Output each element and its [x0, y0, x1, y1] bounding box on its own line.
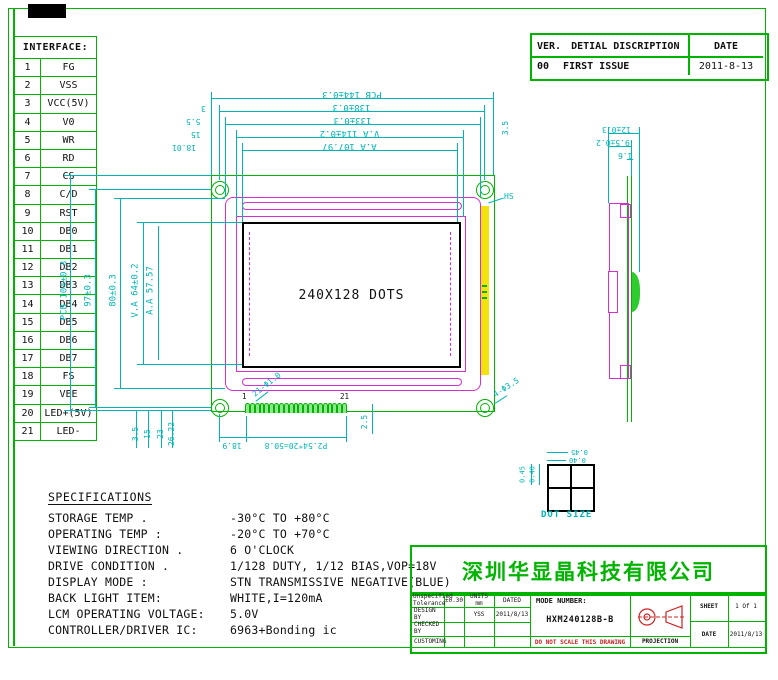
- strip-marking: [482, 285, 487, 287]
- dim-label: 97±0.3: [85, 246, 94, 336]
- interface-row: 18FS: [15, 367, 96, 385]
- pin-name: LED+(5V): [41, 405, 96, 422]
- interface-row: 8C/D: [15, 185, 96, 203]
- mounting-hole-inner: [480, 403, 490, 413]
- logo-block: [28, 4, 66, 18]
- dim-label: 18.9: [214, 441, 250, 449]
- revision-table: VER. DETIAL DISCRIPTION DATE 00 FIRST IS…: [530, 33, 769, 81]
- dim-label: 9.5±0.2: [596, 138, 630, 146]
- rev-desc: FIRST ISSUE: [563, 61, 629, 72]
- spec-label: DISPLAY MODE :: [48, 575, 230, 591]
- dim-label: 3.5: [132, 416, 140, 452]
- spec-value: -30°C TO +80°C: [230, 511, 330, 527]
- pin-number: 21: [15, 423, 41, 440]
- interface-row: 5WR: [15, 131, 96, 149]
- extension-line: [463, 130, 464, 217]
- company-name: 深圳华显晶科技有限公司: [462, 556, 715, 586]
- pin-number: 16: [15, 332, 41, 349]
- va-dashed-line: [450, 232, 451, 356]
- mounting-hole-inner: [480, 185, 490, 195]
- interface-title: INTERFACE:: [15, 37, 96, 58]
- extension-line: [114, 198, 225, 199]
- dimension-line: [158, 226, 159, 360]
- dated-label: DATED: [495, 595, 529, 607]
- extension-line: [346, 416, 347, 442]
- dim-label: 5.5: [186, 117, 200, 125]
- dim-label: P2.54*20=50.8: [246, 441, 346, 449]
- pin-name: C/D: [41, 186, 96, 203]
- model-number-value: HXM240128B-B: [531, 608, 629, 632]
- extension-line: [114, 388, 225, 389]
- spec-label: DRIVE CONDITION .: [48, 559, 230, 575]
- spec-label: BACK LIGHT ITEM:: [48, 591, 230, 607]
- pin-name: FS: [41, 368, 96, 385]
- dot-cell: [570, 487, 595, 512]
- dim-label: 23: [157, 416, 165, 452]
- extension-line: [89, 189, 211, 190]
- pin-name: CS: [41, 168, 96, 185]
- dim-label: 3: [201, 104, 206, 112]
- spec-value: 6963+Bonding ic: [230, 623, 337, 639]
- interface-row: 19VEE: [15, 385, 96, 403]
- pin-number: 6: [15, 150, 41, 167]
- dot-cell: [547, 464, 572, 489]
- mounting-hole-inner: [215, 185, 225, 195]
- dim-label: 12±0.3: [602, 125, 631, 133]
- dim-label: 15: [144, 416, 152, 452]
- interface-row: 17DB7: [15, 349, 96, 367]
- interface-row: 20LED+(5V): [15, 404, 96, 422]
- dim-label: 15: [191, 130, 201, 138]
- interface-row: 1FG: [15, 58, 96, 76]
- specifications: SPECIFICATIONS STORAGE TEMP .-30°C TO +8…: [48, 486, 451, 639]
- pin-number: 1: [15, 59, 41, 76]
- extension-line: [493, 92, 494, 175]
- pin-number: 14: [15, 295, 41, 312]
- dimension-line: [95, 189, 96, 407]
- extension-line: [64, 175, 211, 176]
- pin-name: VEE: [41, 386, 96, 403]
- pin-name: LED-: [41, 423, 96, 440]
- bezel-top-slot: [242, 202, 462, 210]
- spec-row: STORAGE TEMP .-30°C TO +80°C: [48, 511, 451, 527]
- pin-number: 15: [15, 314, 41, 331]
- dim-label: 0.45: [571, 448, 588, 455]
- pin-name: V0: [41, 114, 96, 131]
- pin-number: 13: [15, 277, 41, 294]
- extension-line: [457, 143, 458, 222]
- title-block: Unspecified Tolerance ±0.30 UNITS mm DAT…: [410, 592, 767, 654]
- pin-number: 9: [15, 205, 41, 222]
- interface-row: 6RD: [15, 149, 96, 167]
- projection-label: PROJECTION: [631, 637, 689, 647]
- extension-line: [236, 130, 237, 217]
- model-number-label: MODE NUMBER:: [536, 596, 628, 606]
- rev-date: 2011-8-13: [689, 58, 763, 75]
- pin-number: 4: [15, 114, 41, 131]
- spec-value: 5.0V: [230, 607, 259, 623]
- dim-label: 138±0.3: [219, 102, 484, 111]
- pin-comb: [245, 403, 347, 412]
- spec-title: SPECIFICATIONS: [48, 490, 152, 505]
- spec-row: DISPLAY MODE :STN TRANSMISSIVE NEGATIVE(…: [48, 575, 451, 591]
- interface-row: 7CS: [15, 167, 96, 185]
- pin-number: 3: [15, 95, 41, 112]
- spec-rows: STORAGE TEMP .-30°C TO +80°COPERATING TE…: [48, 511, 451, 639]
- revision-row-left: 00 FIRST ISSUE: [537, 58, 629, 75]
- dim-label: A.A 107.97: [242, 141, 457, 150]
- extension-line: [372, 404, 373, 434]
- dim-label: 1.6: [618, 151, 632, 159]
- pin-name: DB7: [41, 350, 96, 367]
- dimension-line: [70, 175, 71, 410]
- projection-symbol-icon: [636, 602, 686, 632]
- units-label: UNITS mm: [465, 595, 493, 607]
- extension-line: [639, 127, 640, 272]
- extension-line: [480, 117, 481, 197]
- dot-cell: [570, 464, 595, 489]
- extension-line: [484, 105, 485, 180]
- dimension-line: [539, 464, 540, 485]
- pin-number: 18: [15, 368, 41, 385]
- strip-marking: [482, 291, 487, 293]
- design-date: 2011/8/13: [495, 609, 529, 621]
- side-module-slot: [608, 271, 618, 313]
- spec-row: CONTROLLER/DRIVER IC:6963+Bonding ic: [48, 623, 451, 639]
- sheet-value: 1 Of 1: [729, 595, 763, 620]
- interface-table: INTERFACE: 1FG2VSS3VCC(5V)4V05WR6RD7CS8C…: [14, 36, 97, 441]
- spec-value: WHITE,I=120mA: [230, 591, 323, 607]
- interface-row: 21LED-: [15, 422, 96, 440]
- drawing-sheet: VER. DETIAL DISCRIPTION DATE 00 FIRST IS…: [0, 0, 778, 680]
- extension-line: [246, 416, 247, 442]
- extension-line: [225, 117, 226, 197]
- extension-line: [64, 410, 211, 411]
- pin-number: 20: [15, 405, 41, 422]
- dimension-line: [120, 198, 121, 388]
- rev-col-date: DATE: [689, 37, 763, 55]
- extension-line: [211, 92, 212, 175]
- dot-size-label: DOT SIZE: [541, 511, 592, 520]
- spec-value: 6 O'CLOCK: [230, 543, 294, 559]
- extension-line: [219, 105, 220, 180]
- dim-label: 3.5: [502, 121, 510, 135]
- pin-number: 17: [15, 350, 41, 367]
- side-bezel-tab: [620, 365, 631, 379]
- pin-number: 5: [15, 132, 41, 149]
- pin-name: FG: [41, 59, 96, 76]
- connector-pin: [342, 403, 347, 413]
- pin-number-first: 1: [242, 392, 247, 401]
- pin-number: 11: [15, 241, 41, 258]
- active-area: 240X128 DOTS: [242, 222, 461, 368]
- divider: [690, 621, 765, 622]
- pin-number: 12: [15, 259, 41, 276]
- design-by-value: YSS: [465, 609, 493, 621]
- pin-number-last: 21: [340, 392, 349, 401]
- spec-value: -20°C TO +70°C: [230, 527, 330, 543]
- dimension-line: [246, 437, 346, 438]
- pin-name: RD: [41, 150, 96, 167]
- interface-row: 2VSS: [15, 76, 96, 94]
- va-dashed-line: [249, 232, 250, 356]
- customer-label: CUSTOMING: [414, 637, 448, 647]
- dim-label: V.A 114±0.2: [236, 128, 463, 137]
- extension-line: [137, 364, 242, 365]
- dim-label: 2.5: [361, 415, 369, 429]
- dim-label: 0.40: [530, 460, 537, 490]
- spec-label: LCM OPERATING VOLTAGE:: [48, 607, 230, 623]
- pin-number: 7: [15, 168, 41, 185]
- sheet-label: SHEET: [691, 595, 727, 620]
- dim-label: 18.01: [172, 143, 196, 151]
- strip-callout: HS: [504, 193, 514, 201]
- spec-label: VIEWING DIRECTION .: [48, 543, 230, 559]
- spec-row: BACK LIGHT ITEM:WHITE,I=120mA: [48, 591, 451, 607]
- company-box: 深圳华显晶科技有限公司: [410, 545, 767, 596]
- dim-label: PCB 104±0.3: [61, 246, 70, 336]
- spec-row: VIEWING DIRECTION .6 O'CLOCK: [48, 543, 451, 559]
- pin-name: VCC(5V): [41, 95, 96, 112]
- dim-label: V.A 64±0.2: [132, 246, 141, 336]
- dim-label: PCB 144±0.3: [211, 89, 493, 98]
- connector-pin: [323, 403, 328, 413]
- pin-name: RST: [41, 205, 96, 222]
- connector-pin: [255, 403, 260, 413]
- dimension-line: [143, 222, 144, 364]
- side-bezel-tab: [620, 204, 631, 218]
- pin-number: 2: [15, 77, 41, 94]
- date-value: 2011/8/13: [729, 623, 763, 647]
- date-label: DATE: [691, 623, 727, 647]
- spec-label: OPERATING TEMP :: [48, 527, 230, 543]
- dim-label: 0.45: [520, 460, 527, 490]
- rev-ver: 00: [537, 61, 549, 72]
- dim-label: 26.22: [168, 416, 176, 452]
- strip-marking: [482, 297, 487, 299]
- rev-col-ver: VER.: [537, 41, 561, 52]
- tolerance-value: ±0.30: [445, 595, 463, 607]
- pin-name: VSS: [41, 77, 96, 94]
- display-text: 240X128 DOTS: [299, 288, 405, 303]
- dimension-line: [219, 437, 246, 438]
- pin-number: 8: [15, 186, 41, 203]
- revision-header-left: VER. DETIAL DISCRIPTION: [537, 37, 679, 55]
- checked-by-label: CHECKED BY: [414, 623, 446, 635]
- dimension-line: [547, 460, 566, 461]
- dim-label: 0.40: [569, 456, 586, 463]
- pin-name: DB0: [41, 223, 96, 240]
- extension-line: [242, 143, 243, 222]
- spec-value: 1/128 DUTY, 1/12 BIAS,VOP=18V: [230, 559, 437, 575]
- rev-col-desc: DETIAL DISCRIPTION: [571, 41, 679, 52]
- spec-row: OPERATING TEMP :-20°C TO +70°C: [48, 527, 451, 543]
- dim-label: A.A 57.57: [147, 246, 156, 336]
- dim-label: 133±0.3: [225, 115, 480, 124]
- dim-label: 80±0.3: [110, 246, 119, 336]
- mounting-hole-inner: [215, 403, 225, 413]
- spec-label: CONTROLLER/DRIVER IC:: [48, 623, 230, 639]
- dimension-line: [547, 452, 568, 453]
- spec-row: DRIVE CONDITION .1/128 DUTY, 1/12 BIAS,V…: [48, 559, 451, 575]
- pin-number: 19: [15, 386, 41, 403]
- no-scale-warning: DO NOT SCALE THIS DRAWING: [531, 637, 629, 647]
- dot-cell: [547, 487, 572, 512]
- interface-row: 10DB0: [15, 222, 96, 240]
- extension-line: [137, 222, 242, 223]
- extension-line: [89, 407, 211, 408]
- design-by-label: DESIGN BY: [414, 609, 444, 621]
- connector-pin: [250, 403, 255, 413]
- interface-row: 9RST: [15, 204, 96, 222]
- interface-row: 3VCC(5V): [15, 94, 96, 112]
- connector-pin: [289, 403, 294, 413]
- pin-number: 10: [15, 223, 41, 240]
- spec-label: STORAGE TEMP .: [48, 511, 230, 527]
- spec-row: LCM OPERATING VOLTAGE:5.0V: [48, 607, 451, 623]
- interface-row: 4V0: [15, 113, 96, 131]
- tolerance-label: Unspecified Tolerance: [413, 595, 443, 607]
- extension-line: [219, 414, 220, 442]
- pin-name: WR: [41, 132, 96, 149]
